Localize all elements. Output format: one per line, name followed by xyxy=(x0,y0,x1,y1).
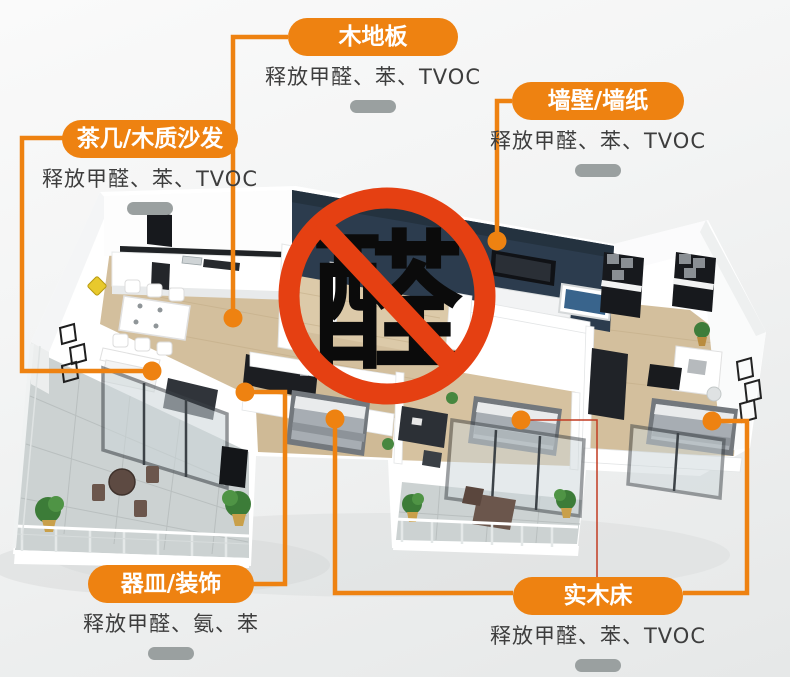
bed-right-dot xyxy=(703,412,722,431)
label-bed: 实木床 释放甲醛、苯、TVOC xyxy=(483,577,713,672)
label-decor-badge: 器皿/装饰 xyxy=(88,565,254,603)
label-sofa-subtitle: 释放甲醛、苯、TVOC xyxy=(42,163,258,193)
label-wall: 墙壁/墙纸 释放甲醛、苯、TVOC xyxy=(483,82,713,177)
gray-dash xyxy=(127,202,173,215)
infographic-stage: 醛 木地板 释放甲醛、苯、TVOC 墙壁/墙纸 释放甲醛、苯、TVOC 茶几/木… xyxy=(0,0,790,677)
gray-dash xyxy=(148,647,194,660)
sofa-dot xyxy=(143,362,162,381)
wardrobe xyxy=(588,348,628,420)
label-sofa-badge: 茶几/木质沙发 xyxy=(62,120,238,158)
label-floor-badge: 木地板 xyxy=(288,18,458,56)
label-floor-subtitle: 释放甲醛、苯、TVOC xyxy=(265,61,481,91)
wall-dot xyxy=(488,232,507,251)
bed-left-dot xyxy=(326,410,345,429)
label-sofa: 茶几/木质沙发 释放甲醛、苯、TVOC xyxy=(35,120,265,215)
label-wall-badge: 墙壁/墙纸 xyxy=(512,82,684,120)
bed-middle-dot xyxy=(512,411,531,430)
label-decor-subtitle: 释放甲醛、氨、苯 xyxy=(83,608,259,638)
gray-dash xyxy=(575,164,621,177)
glass-door-right xyxy=(628,426,724,498)
label-bed-subtitle: 释放甲醛、苯、TVOC xyxy=(490,620,706,650)
decor-dot xyxy=(236,383,255,402)
gray-dash xyxy=(575,659,621,672)
label-wall-subtitle: 释放甲醛、苯、TVOC xyxy=(490,125,706,155)
prohibition-sign: 醛 xyxy=(289,198,485,394)
gray-dash xyxy=(350,100,396,113)
floor-dot xyxy=(224,309,243,328)
label-floor: 木地板 释放甲醛、苯、TVOC xyxy=(258,18,488,113)
label-bed-badge: 实木床 xyxy=(513,577,683,615)
label-decor: 器皿/装饰 释放甲醛、氨、苯 xyxy=(56,565,286,660)
